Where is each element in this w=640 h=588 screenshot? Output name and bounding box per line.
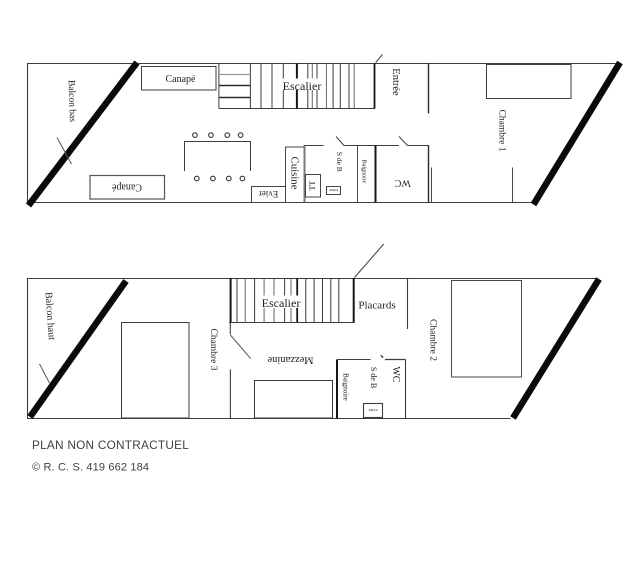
svg-text:Placards: Placards <box>358 300 395 312</box>
svg-text:S de B: S de B <box>335 152 344 172</box>
svg-text:WC: WC <box>390 366 401 382</box>
svg-text:© R. C. S. 419 662 184: © R. C. S. 419 662 184 <box>32 462 149 474</box>
svg-text:evier: evier <box>329 188 338 193</box>
svg-text:Canapé: Canapé <box>111 181 142 192</box>
svg-text:Mezzanine: Mezzanine <box>267 354 313 365</box>
svg-text:S de B: S de B <box>369 367 378 388</box>
svg-text:Baignoire: Baignoire <box>342 373 350 401</box>
svg-text:Escalier: Escalier <box>262 296 301 310</box>
svg-text:Evier: Evier <box>259 189 279 199</box>
svg-text:Balcon haut: Balcon haut <box>43 292 57 341</box>
svg-text:Chambre 3: Chambre 3 <box>208 329 218 371</box>
svg-text:PLAN NON CONTRACTUEL: PLAN NON CONTRACTUEL <box>32 438 189 452</box>
svg-text:Entrée: Entrée <box>390 68 401 96</box>
svg-text:TT: TT <box>308 181 317 191</box>
svg-text:Balcon bas: Balcon bas <box>66 80 77 123</box>
svg-text:Chambre 1: Chambre 1 <box>496 110 506 152</box>
svg-text:Chambre 2: Chambre 2 <box>427 319 437 361</box>
svg-text:Baignoire: Baignoire <box>361 160 367 184</box>
svg-text:Canapé: Canapé <box>166 74 197 85</box>
svg-text:Cuisine: Cuisine <box>289 157 301 190</box>
svg-text:WC: WC <box>394 177 410 188</box>
svg-text:evier: evier <box>368 408 377 413</box>
svg-text:Escalier: Escalier <box>283 79 322 93</box>
